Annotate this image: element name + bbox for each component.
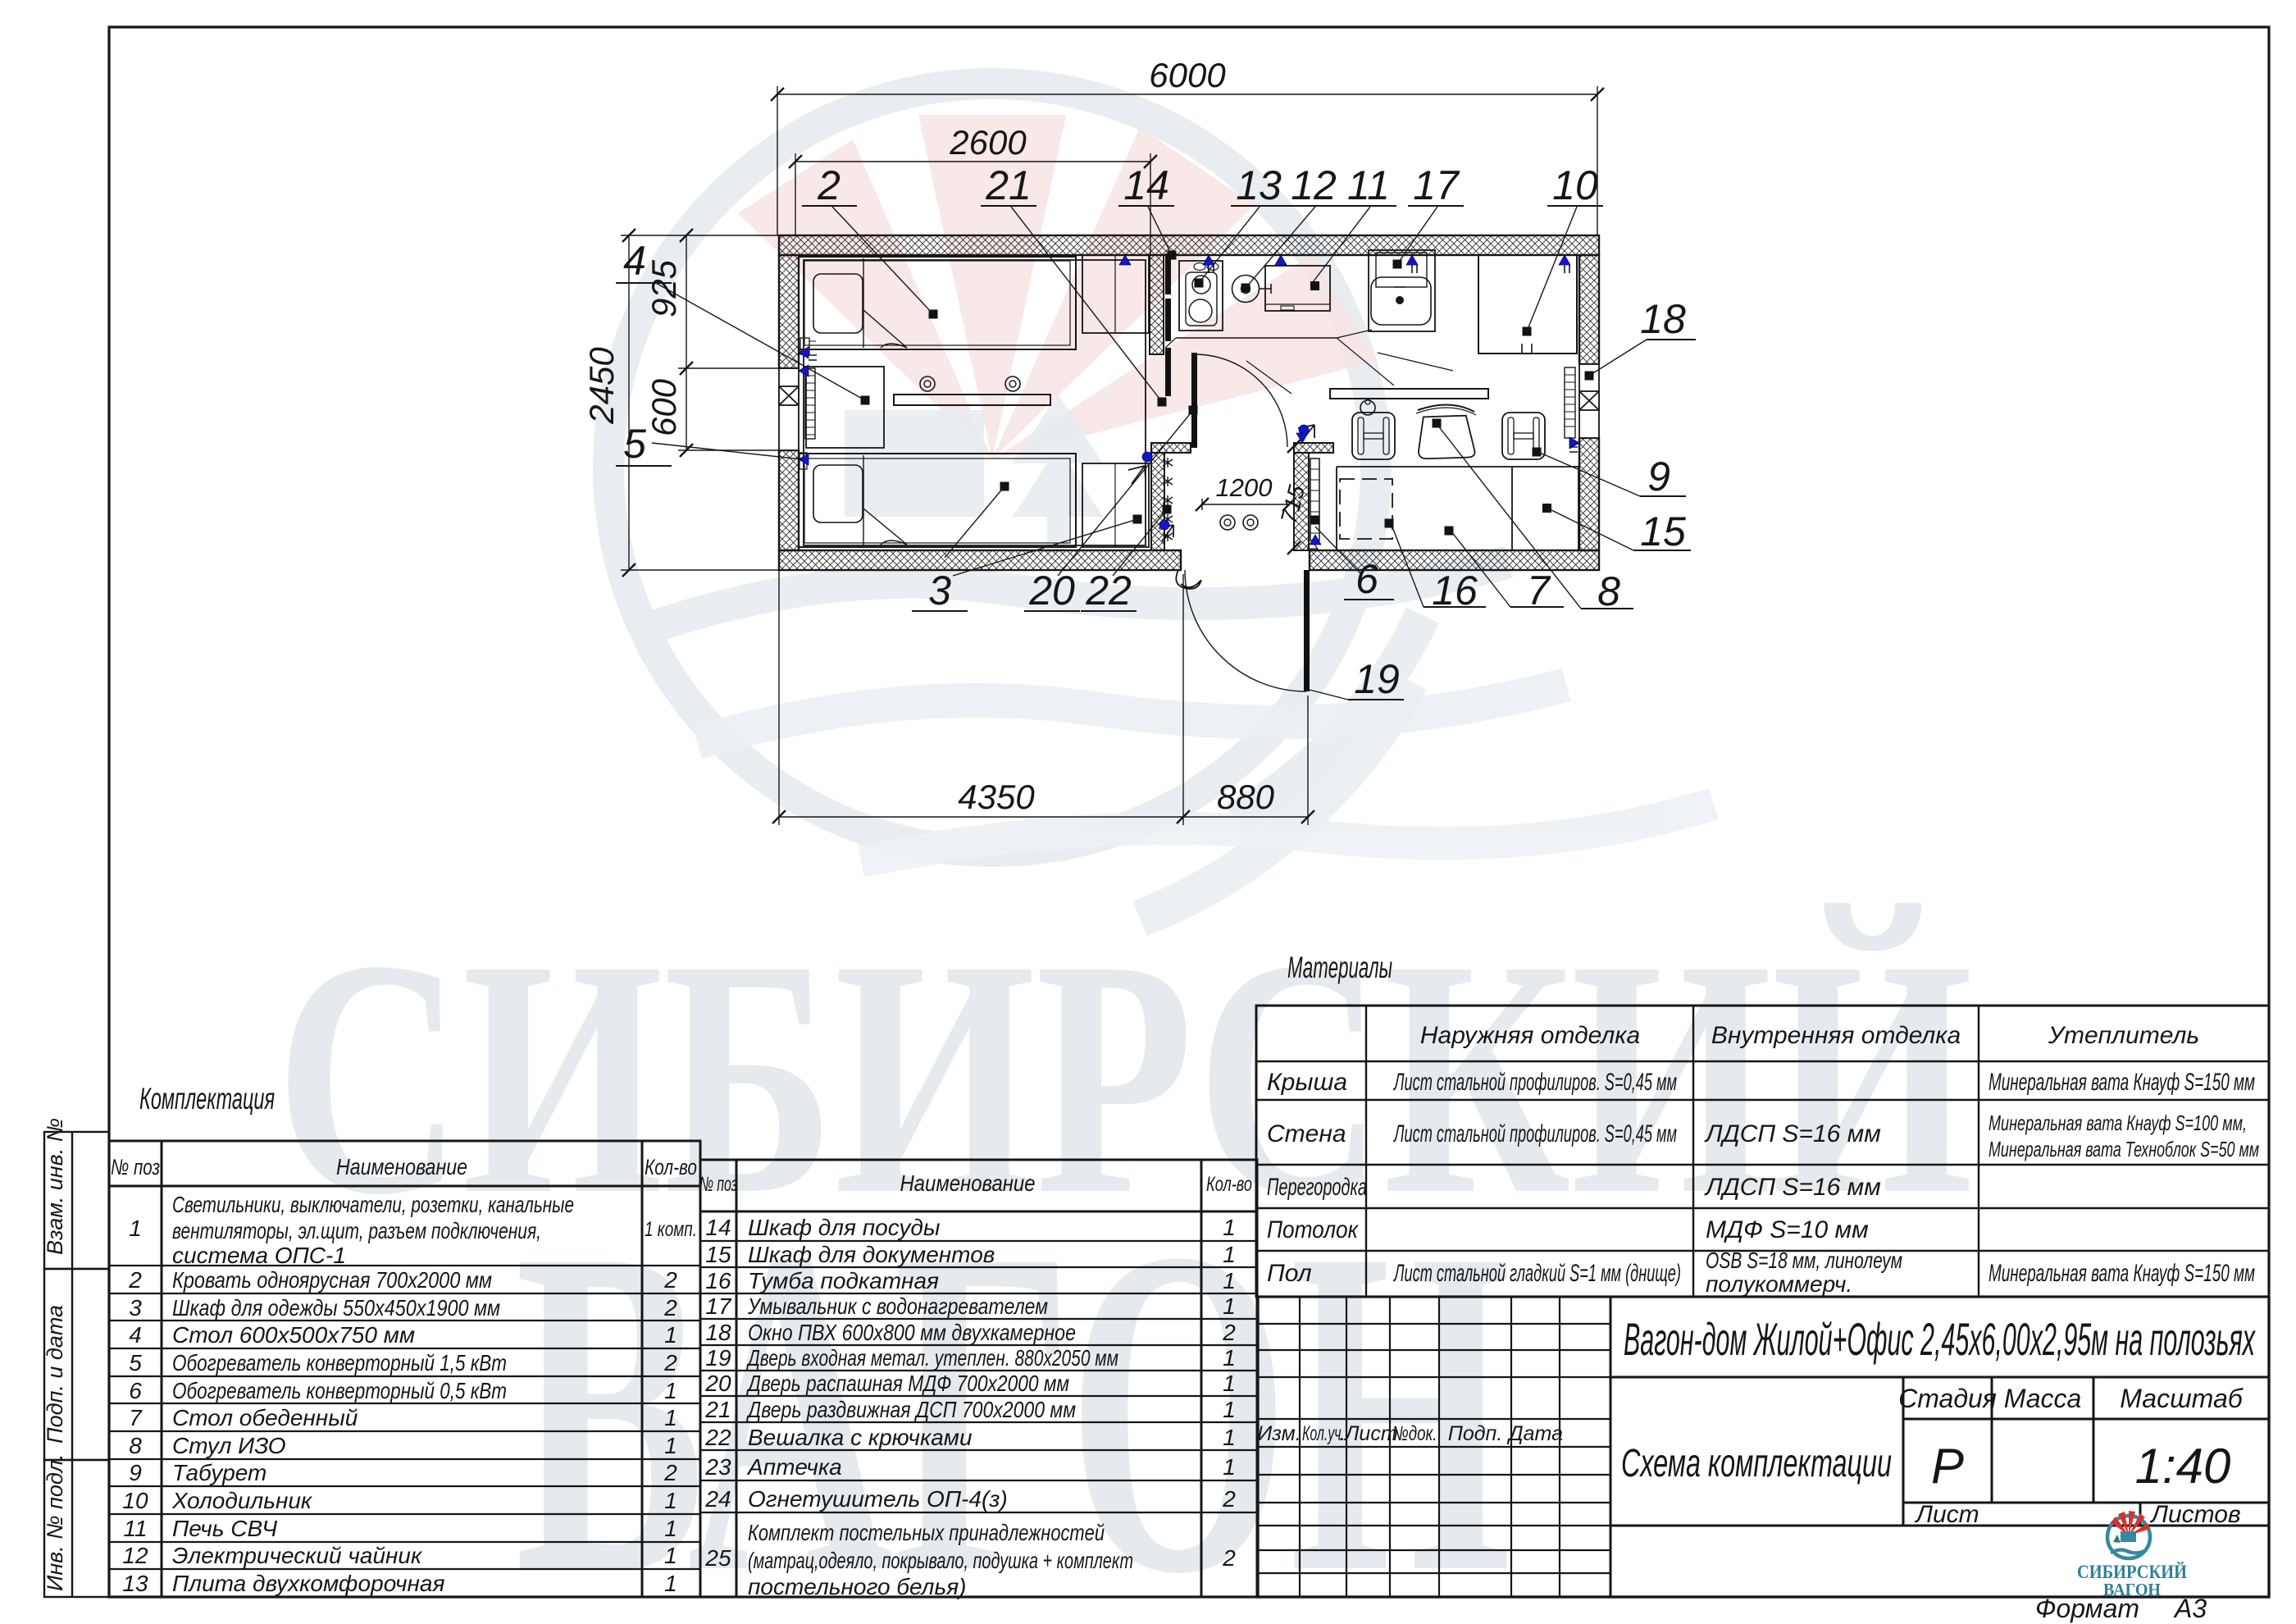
svg-text:12: 12 xyxy=(1291,162,1337,208)
svg-text:Холодильник: Холодильник xyxy=(171,1488,313,1513)
svg-text:10: 10 xyxy=(122,1488,148,1513)
svg-text:Внутренняя отделка: Внутренняя отделка xyxy=(1711,1022,1961,1049)
svg-text:Вешалка с крючками: Вешалка с крючками xyxy=(748,1425,973,1450)
svg-text:2: 2 xyxy=(128,1267,142,1293)
svg-text:1: 1 xyxy=(1223,1454,1236,1480)
svg-text:880: 880 xyxy=(1217,778,1275,816)
svg-text:Подп.: Подп. xyxy=(1448,1422,1503,1445)
svg-text:Лист стальной профилиров. S=0,: Лист стальной профилиров. S=0,45 мм xyxy=(1393,1069,1677,1096)
svg-text:6: 6 xyxy=(129,1378,142,1403)
svg-text:9: 9 xyxy=(129,1460,142,1485)
svg-text:22: 22 xyxy=(704,1425,731,1450)
svg-text:Обогреватель конверторный 0,5: Обогреватель конверторный 0,5 кВт xyxy=(172,1378,507,1403)
svg-text:Инв. № подл.: Инв. № подл. xyxy=(43,1453,67,1591)
svg-text:4350: 4350 xyxy=(958,778,1035,816)
svg-text:25: 25 xyxy=(704,1545,731,1571)
svg-text:Комплектация: Комплектация xyxy=(139,1082,275,1115)
svg-text:Минеральная вата Кнауф S=150 м: Минеральная вата Кнауф S=150 мм xyxy=(1988,1260,2255,1287)
svg-text:20: 20 xyxy=(1028,568,1075,614)
svg-text:11: 11 xyxy=(123,1516,147,1541)
svg-text:12: 12 xyxy=(122,1543,148,1568)
svg-text:Обогреватель конверторный 1,5: Обогреватель конверторный 1,5 кВт xyxy=(172,1350,507,1375)
svg-text:Шкаф для одежды 550х450х1900 м: Шкаф для одежды 550х450х1900 мм xyxy=(172,1295,500,1321)
svg-text:23: 23 xyxy=(704,1454,731,1480)
svg-text:Материалы: Материалы xyxy=(1287,951,1392,984)
svg-text:Перегородка: Перегородка xyxy=(1267,1174,1367,1201)
svg-text:15: 15 xyxy=(1640,509,1686,554)
svg-text:№док.: №док. xyxy=(1392,1422,1437,1445)
svg-text:Минеральная вата Кнауф S=150 м: Минеральная вата Кнауф S=150 мм xyxy=(1988,1069,2255,1096)
svg-text:21: 21 xyxy=(985,162,1032,208)
svg-text:Наружняя отделка: Наружняя отделка xyxy=(1420,1022,1640,1049)
svg-text:Стул ИЗО: Стул ИЗО xyxy=(172,1433,286,1458)
svg-text:Вагон-дом Жилой+Офис 2,45х6,00: Вагон-дом Жилой+Офис 2,45х6,00х2,95м на … xyxy=(1624,1313,2256,1365)
svg-text:9: 9 xyxy=(1647,454,1670,500)
svg-text:Кол.уч.: Кол.уч. xyxy=(1302,1422,1345,1445)
svg-text:Лист: Лист xyxy=(1914,1501,1979,1528)
svg-text:Наименование: Наименование xyxy=(336,1154,467,1179)
svg-text:24: 24 xyxy=(704,1486,731,1512)
svg-text:18: 18 xyxy=(1640,296,1686,342)
svg-text:19: 19 xyxy=(705,1345,731,1371)
svg-text:925: 925 xyxy=(645,259,683,317)
svg-text:19: 19 xyxy=(1354,656,1400,702)
svg-text:А3: А3 xyxy=(2173,1594,2207,1623)
svg-text:17: 17 xyxy=(705,1293,732,1319)
svg-text:1: 1 xyxy=(1223,1425,1236,1450)
svg-text:Взам. инв. №: Взам. инв. № xyxy=(43,1118,67,1255)
svg-text:7: 7 xyxy=(129,1405,143,1430)
svg-text:Стол 600х500х750 мм: Стол 600х500х750 мм xyxy=(172,1322,415,1348)
svg-text:Кол-во: Кол-во xyxy=(1206,1173,1252,1196)
svg-text:1: 1 xyxy=(1223,1397,1236,1422)
svg-text:Наименование: Наименование xyxy=(900,1170,1036,1196)
svg-text:6: 6 xyxy=(1355,556,1378,602)
svg-text:2: 2 xyxy=(663,1295,677,1321)
svg-text:Стена: Стена xyxy=(1267,1120,1346,1147)
svg-text:8: 8 xyxy=(129,1433,142,1458)
svg-text:11: 11 xyxy=(1347,162,1390,208)
svg-text:1: 1 xyxy=(1223,1293,1236,1319)
svg-text:2: 2 xyxy=(663,1267,677,1293)
svg-text:3: 3 xyxy=(129,1295,142,1321)
svg-text:22: 22 xyxy=(1085,568,1132,614)
svg-text:3: 3 xyxy=(928,568,951,614)
svg-text:1: 1 xyxy=(1223,1268,1236,1293)
svg-text:1: 1 xyxy=(1223,1242,1236,1267)
svg-text:Умывальник с водонагревателем: Умывальник с водонагревателем xyxy=(747,1293,1048,1319)
svg-text:Минеральная вата Кнауф S=100 м: Минеральная вата Кнауф S=100 мм, xyxy=(1988,1111,2247,1135)
svg-text:2: 2 xyxy=(1222,1545,1236,1571)
svg-text:Тумба подкатная: Тумба подкатная xyxy=(748,1268,939,1293)
svg-text:Дверь раздвижная ДСП 700х2000: Дверь раздвижная ДСП 700х2000 мм xyxy=(746,1397,1076,1422)
svg-text:Комплект постельных принадлежн: Комплект постельных принадлежностей xyxy=(748,1520,1105,1545)
svg-text:10: 10 xyxy=(1552,162,1598,208)
svg-text:система ОПС-1: система ОПС-1 xyxy=(172,1243,346,1268)
svg-text:4: 4 xyxy=(623,238,646,284)
svg-text:1200: 1200 xyxy=(1216,473,1273,502)
svg-text:1: 1 xyxy=(664,1488,677,1513)
svg-text:Дверь входная метал. утеплен.: Дверь входная метал. утеплен. 880х2050 м… xyxy=(746,1345,1118,1371)
svg-text:1: 1 xyxy=(1223,1345,1236,1371)
svg-text:№ поз: № поз xyxy=(111,1155,160,1179)
svg-text:2450: 2450 xyxy=(582,347,621,425)
svg-text:14: 14 xyxy=(705,1215,731,1240)
svg-text:.Лист: .Лист xyxy=(1339,1422,1397,1445)
svg-text:1: 1 xyxy=(664,1543,677,1568)
svg-text:Потолок: Потолок xyxy=(1267,1216,1360,1243)
svg-text:Кровать одноярусная 700х2000 м: Кровать одноярусная 700х2000 мм xyxy=(172,1267,492,1293)
svg-text:Плита двухкомфорочная: Плита двухкомфорочная xyxy=(172,1571,444,1596)
svg-text:Утеплитель: Утеплитель xyxy=(2048,1022,2199,1049)
svg-text:1: 1 xyxy=(664,1378,677,1403)
svg-text:ЛДСП S=16 мм: ЛДСП S=16 мм xyxy=(1704,1174,1881,1201)
svg-text:13: 13 xyxy=(122,1571,148,1596)
svg-text:600: 600 xyxy=(645,378,683,436)
svg-text:Р: Р xyxy=(1931,1439,1964,1494)
svg-text:5: 5 xyxy=(129,1350,142,1375)
svg-text:21: 21 xyxy=(704,1397,731,1422)
svg-text:Окно ПВХ 600х800 мм двухкамерн: Окно ПВХ 600х800 мм двухкамерное xyxy=(748,1320,1076,1345)
svg-text:Минеральная вата Техноблок S=5: Минеральная вата Техноблок S=50 мм xyxy=(1988,1137,2259,1161)
svg-text:Масса: Масса xyxy=(2004,1384,2082,1413)
svg-text:Пол: Пол xyxy=(1267,1260,1312,1287)
svg-text:№ поз: № поз xyxy=(699,1173,737,1196)
svg-text:Лист стальной профилиров. S=0,: Лист стальной профилиров. S=0,45 мм xyxy=(1393,1120,1677,1147)
svg-text:1: 1 xyxy=(664,1322,677,1348)
svg-text:16: 16 xyxy=(705,1268,731,1293)
svg-text:18: 18 xyxy=(705,1320,731,1345)
svg-text:Электрический чайник: Электрический чайник xyxy=(172,1543,423,1568)
svg-text:8: 8 xyxy=(1597,568,1620,614)
svg-text:Схема комплектации: Схема комплектации xyxy=(1621,1442,1892,1485)
svg-text:(матрац,одеяло, покрывало, под: (матрац,одеяло, покрывало, подушка + ком… xyxy=(748,1548,1133,1573)
svg-text:Огнетушитель ОП-4(з): Огнетушитель ОП-4(з) xyxy=(748,1486,1008,1512)
svg-text:Шкаф для посуды: Шкаф для посуды xyxy=(748,1215,941,1240)
svg-text:Дверь распашная МДФ 700х2000 м: Дверь распашная МДФ 700х2000 мм xyxy=(746,1371,1069,1396)
svg-text:Масштаб: Масштаб xyxy=(2120,1384,2243,1413)
svg-text:1: 1 xyxy=(664,1405,677,1430)
svg-text:Крыша: Крыша xyxy=(1267,1069,1347,1096)
svg-text:вентиляторы, эл.щит, разъем по: вентиляторы, эл.щит, разъем подключения, xyxy=(172,1218,541,1243)
svg-text:1: 1 xyxy=(664,1516,677,1541)
svg-text:1: 1 xyxy=(129,1216,142,1241)
svg-text:15: 15 xyxy=(705,1242,731,1267)
svg-text:Табурет: Табурет xyxy=(172,1460,266,1485)
svg-text:Стол обеденный: Стол обеденный xyxy=(172,1405,358,1430)
svg-text:6000: 6000 xyxy=(1149,56,1226,94)
svg-text:Шкаф для документов: Шкаф для документов xyxy=(748,1242,995,1267)
svg-text:4: 4 xyxy=(129,1322,142,1348)
svg-text:Дата: Дата xyxy=(1506,1422,1563,1445)
svg-text:14: 14 xyxy=(1123,162,1169,208)
svg-text:2: 2 xyxy=(1222,1320,1236,1345)
svg-text:Печь СВЧ: Печь СВЧ xyxy=(172,1516,277,1541)
svg-text:1: 1 xyxy=(1223,1215,1236,1240)
svg-text:1: 1 xyxy=(664,1433,677,1458)
svg-text:постельного белья): постельного белья) xyxy=(748,1574,966,1599)
svg-text:2: 2 xyxy=(1222,1486,1236,1512)
svg-text:МДФ S=10 мм: МДФ S=10 мм xyxy=(1706,1216,1869,1243)
svg-text:OSB S=18 мм, линолеум: OSB S=18 мм, линолеум xyxy=(1706,1248,1902,1273)
svg-text:1: 1 xyxy=(1223,1371,1236,1396)
svg-text:13: 13 xyxy=(1236,162,1282,208)
svg-text:17: 17 xyxy=(1413,162,1460,208)
svg-text:ЛДСП S=16 мм: ЛДСП S=16 мм xyxy=(1704,1120,1881,1147)
svg-text:Подп. и дата: Подп. и дата xyxy=(43,1305,67,1444)
svg-text:2600: 2600 xyxy=(949,123,1027,162)
svg-text:Кол-во: Кол-во xyxy=(645,1155,697,1179)
svg-text:Листов: Листов xyxy=(2149,1501,2240,1528)
svg-text:Светильники, выключатели, розе: Светильники, выключатели, розетки, канал… xyxy=(172,1192,574,1217)
svg-text:ВАГОН: ВАГОН xyxy=(2103,1580,2161,1599)
svg-text:20: 20 xyxy=(704,1371,731,1396)
svg-text:полукоммерч.: полукоммерч. xyxy=(1706,1271,1852,1297)
svg-text:2: 2 xyxy=(663,1460,677,1485)
svg-text:1:40: 1:40 xyxy=(2135,1439,2231,1494)
svg-text:5: 5 xyxy=(623,421,646,467)
svg-text:Изм.: Изм. xyxy=(1257,1422,1301,1445)
svg-text:1: 1 xyxy=(664,1571,677,1596)
svg-text:Лист стальной гладкий S=1 мм (: Лист стальной гладкий S=1 мм (днище) xyxy=(1393,1260,1681,1287)
svg-text:2: 2 xyxy=(663,1350,677,1375)
svg-text:Стадия: Стадия xyxy=(1898,1384,1997,1413)
svg-text:Аптечка: Аптечка xyxy=(746,1454,842,1480)
svg-text:1 комп.: 1 комп. xyxy=(645,1218,697,1241)
svg-text:2: 2 xyxy=(817,162,840,208)
